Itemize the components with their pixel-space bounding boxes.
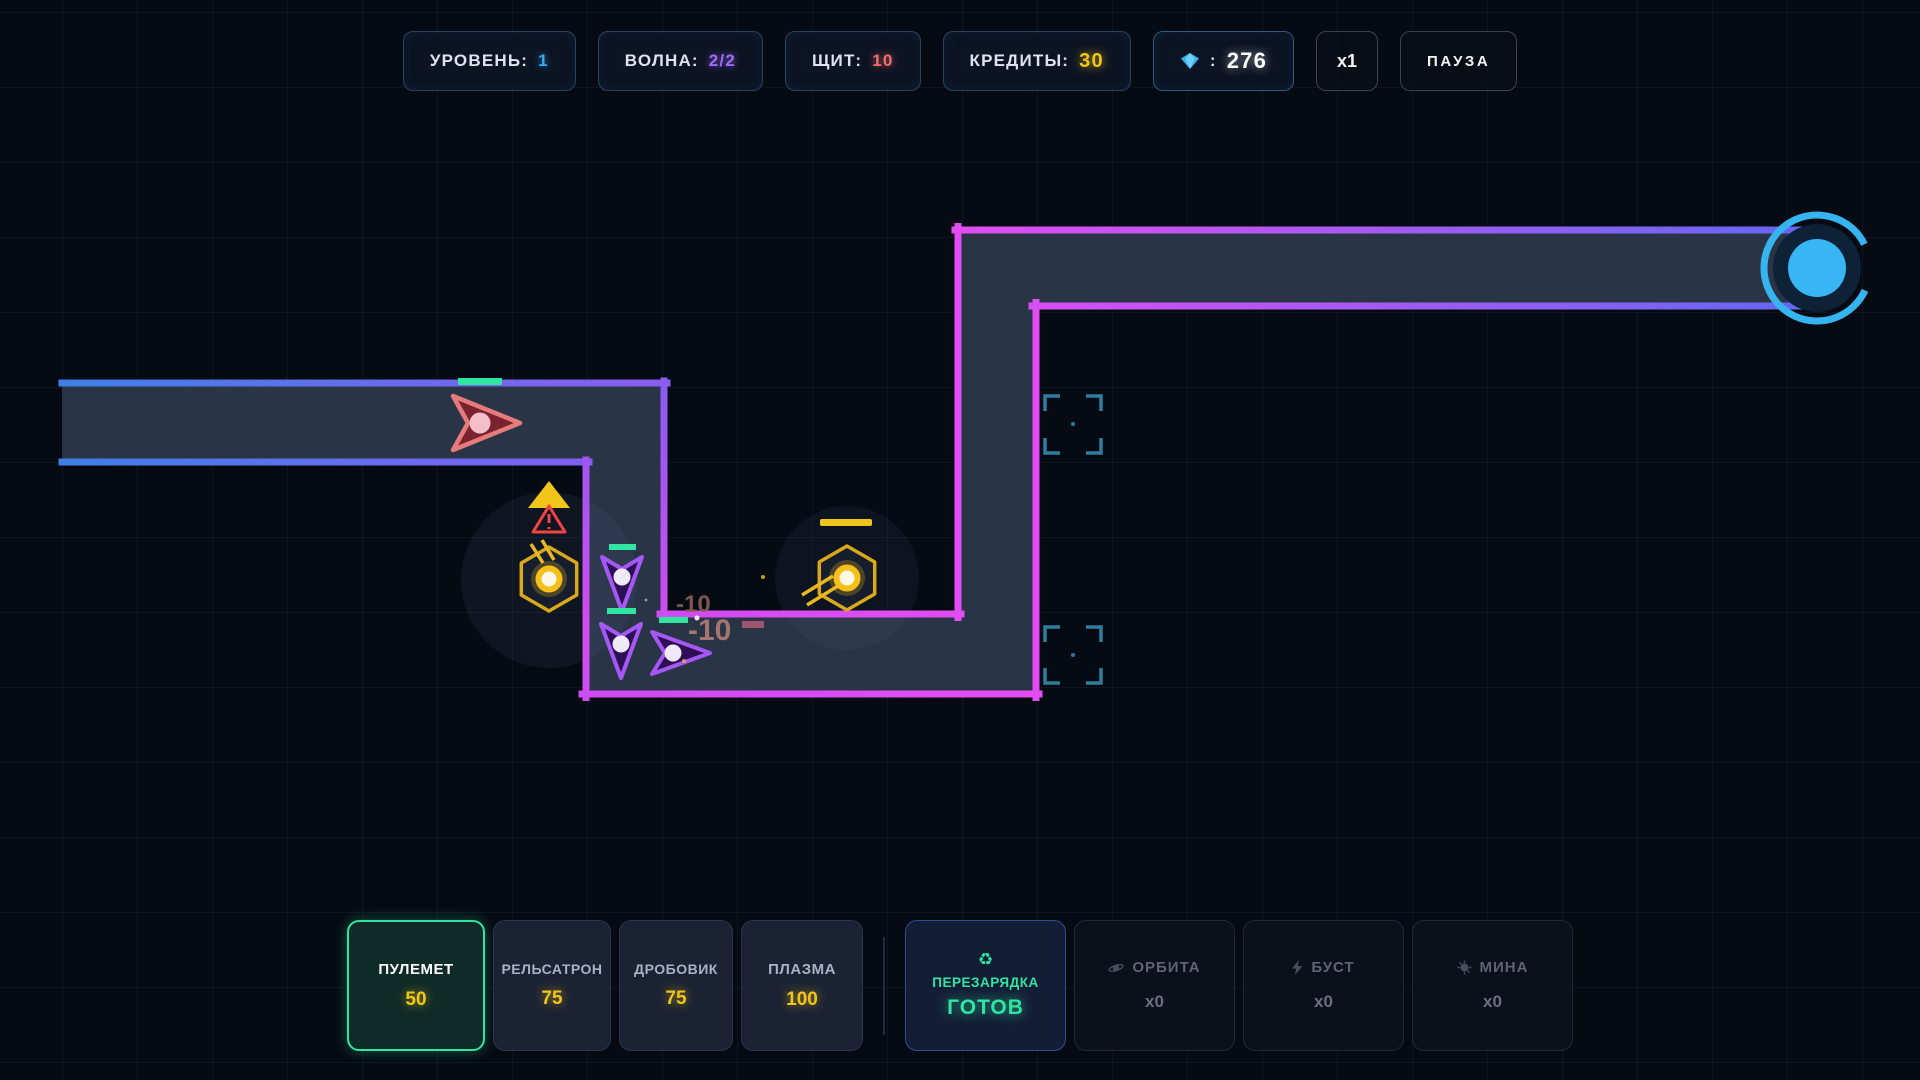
tower-price: 75 (665, 988, 686, 1010)
game-screen: -10 -10 УРОВЕНЬ: 1 ВОЛНА: 2/2 ЩИТ: 10 КР… (0, 0, 1920, 1080)
reload-label: ПЕРЕЗАРЯДКА (932, 975, 1038, 990)
tower-label: РЕЛЬСАТРОН (501, 961, 602, 977)
battlefield-canvas: -10 -10 (0, 0, 1920, 1080)
tower-label: ПУЛЕМЕТ (378, 961, 453, 978)
shield-label: ЩИТ: (812, 51, 862, 71)
tower-label: ПЛАЗМА (768, 961, 836, 978)
gems-value: 276 (1227, 48, 1267, 74)
damage-number: -10 (688, 614, 731, 647)
enemy-health-bar (609, 544, 636, 550)
bottom-toolbar: ПУЛЕМЕТ 50 РЕЛЬСАТРОН 75 ДРОБОВИК 75 ПЛА… (0, 920, 1920, 1051)
gems-separator: : (1210, 51, 1217, 71)
particle (761, 575, 765, 579)
reload-button[interactable]: ♻ ПЕРЕЗАРЯДКА ГОТОВ (905, 920, 1066, 1051)
pause-button[interactable]: ПАУЗА (1400, 31, 1517, 91)
recycle-icon: ♻ (978, 952, 993, 969)
gem-icon (1180, 52, 1200, 70)
credits-label: КРЕДИТЫ: (970, 51, 1070, 71)
tower-price: 50 (405, 989, 426, 1011)
enemy-health-bar (458, 378, 502, 385)
particle (645, 599, 648, 602)
particle (682, 659, 686, 663)
tower-button-shotgun[interactable]: ДРОБОВИК 75 (619, 920, 733, 1051)
orbit-icon (1108, 961, 1124, 975)
speed-button[interactable]: x1 (1316, 31, 1378, 91)
ability-label: ОРБИТА (1132, 959, 1200, 976)
enemy-health-bar (607, 608, 636, 614)
tower-button-plasma[interactable]: ПЛАЗМА 100 (741, 920, 863, 1051)
wave-badge: ВОЛНА: 2/2 (598, 31, 763, 91)
ability-button-orbit[interactable]: ОРБИТА x0 (1074, 920, 1235, 1051)
wave-label: ВОЛНА: (625, 51, 699, 71)
ability-count: x0 (1145, 992, 1164, 1012)
bolt-icon (1292, 960, 1303, 975)
credits-badge: КРЕДИТЫ: 30 (943, 31, 1131, 91)
tower-label: ДРОБОВИК (634, 961, 718, 977)
level-label: УРОВЕНЬ: (430, 51, 528, 71)
wave-value: 2/2 (709, 51, 736, 71)
tower-slot[interactable] (1045, 396, 1101, 453)
level-value: 1 (538, 51, 549, 71)
tower-slot[interactable] (1045, 627, 1101, 683)
ability-count: x0 (1314, 992, 1333, 1012)
credits-value: 30 (1079, 50, 1104, 73)
ability-button-boost[interactable]: БУСТ x0 (1243, 920, 1404, 1051)
shield-badge: ЩИТ: 10 (785, 31, 920, 91)
ability-label: БУСТ (1311, 959, 1354, 976)
tower-cooldown-bar (820, 519, 872, 526)
tower-button-railgun[interactable]: РЕЛЬСАТРОН 75 (493, 920, 611, 1051)
tower-button-machinegun[interactable]: ПУЛЕМЕТ 50 (347, 920, 485, 1051)
toolbar-divider (883, 937, 885, 1035)
mine-icon (1457, 960, 1472, 975)
gems-badge: : 276 (1153, 31, 1294, 91)
particle (695, 616, 700, 621)
ability-label: МИНА (1480, 959, 1529, 976)
top-hud: УРОВЕНЬ: 1 ВОЛНА: 2/2 ЩИТ: 10 КРЕДИТЫ: 3… (0, 31, 1920, 91)
ability-count: x0 (1483, 992, 1502, 1012)
ability-button-mine[interactable]: МИНА x0 (1412, 920, 1573, 1051)
shield-value: 10 (872, 51, 893, 71)
tower-price: 100 (786, 989, 818, 1011)
damage-trail (742, 621, 764, 628)
level-badge: УРОВЕНЬ: 1 (403, 31, 576, 91)
tower-price: 75 (541, 988, 562, 1010)
reload-status: ГОТОВ (947, 996, 1024, 1020)
